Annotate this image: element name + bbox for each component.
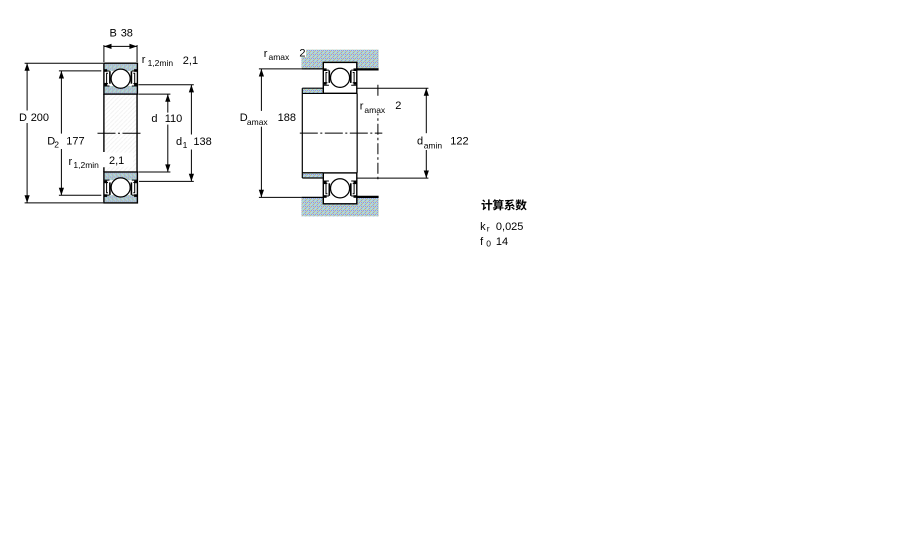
- svg-text:d: d: [176, 136, 182, 148]
- svg-text:2: 2: [54, 139, 59, 149]
- svg-text:k: k: [480, 221, 486, 233]
- svg-text:amax: amax: [364, 105, 386, 115]
- svg-text:r: r: [264, 48, 268, 60]
- svg-text:B: B: [110, 27, 117, 39]
- svg-text:138: 138: [193, 136, 211, 148]
- svg-text:r: r: [360, 101, 364, 113]
- svg-text:38: 38: [121, 27, 133, 39]
- svg-text:0: 0: [486, 238, 491, 248]
- svg-text:D: D: [19, 112, 27, 124]
- svg-text:200: 200: [31, 112, 49, 124]
- svg-text:110: 110: [165, 113, 183, 125]
- svg-text:1: 1: [183, 140, 188, 150]
- svg-text:1,2min: 1,2min: [73, 160, 99, 170]
- svg-text:14: 14: [496, 236, 508, 248]
- svg-text:2,1: 2,1: [183, 55, 198, 67]
- svg-text:2: 2: [395, 100, 401, 112]
- svg-text:122: 122: [450, 135, 468, 147]
- svg-text:d: d: [417, 135, 423, 147]
- svg-text:r: r: [487, 223, 490, 233]
- svg-text:amax: amax: [269, 52, 291, 62]
- svg-text:1,2min: 1,2min: [148, 58, 174, 68]
- svg-text:r: r: [69, 156, 73, 168]
- svg-text:r: r: [142, 54, 146, 66]
- svg-text:amax: amax: [247, 117, 269, 127]
- svg-text:2: 2: [299, 48, 305, 60]
- svg-text:2,1: 2,1: [109, 155, 124, 167]
- svg-text:d: d: [151, 113, 157, 125]
- svg-text:177: 177: [66, 135, 84, 147]
- svg-text:amin: amin: [424, 140, 443, 150]
- svg-text:188: 188: [278, 112, 296, 124]
- svg-text:0,025: 0,025: [496, 221, 524, 233]
